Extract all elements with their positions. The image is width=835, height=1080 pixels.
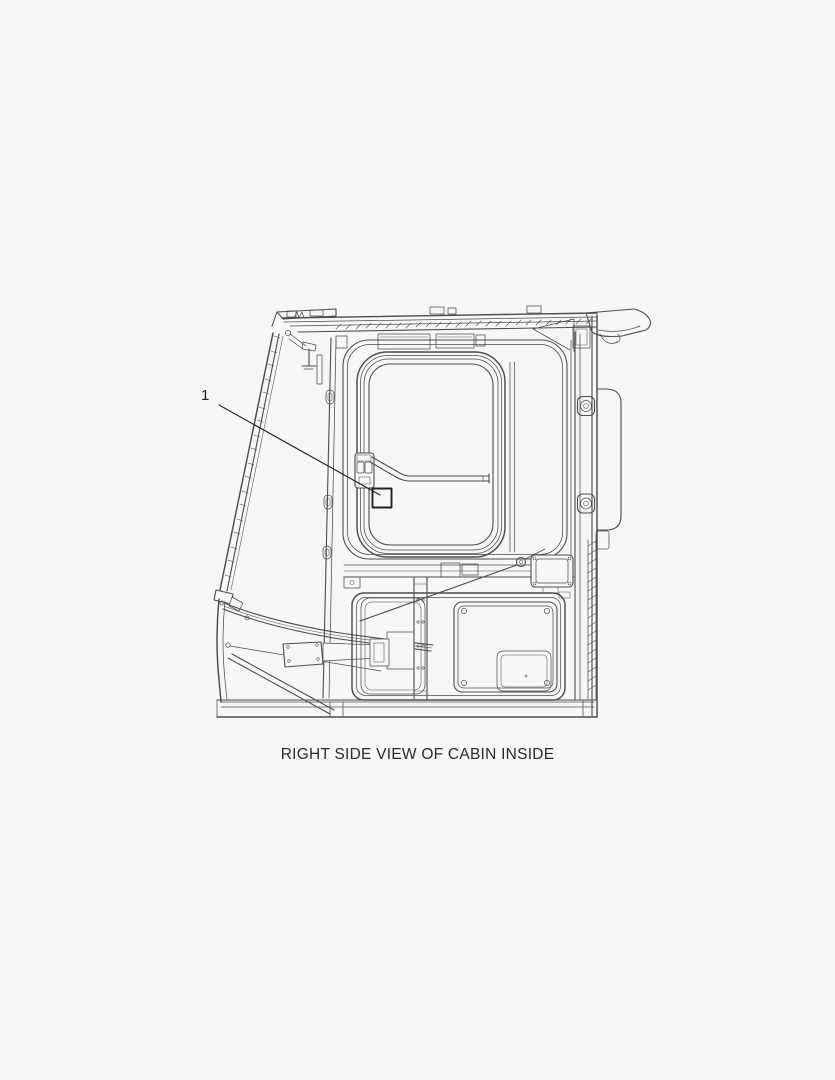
callout-target-box — [373, 489, 392, 508]
rear-pillar — [573, 315, 621, 717]
door-window — [343, 340, 571, 577]
callout-1-label: 1 — [201, 388, 210, 403]
window-latch-and-handle — [355, 453, 489, 488]
parts-diagram-figure: 1 RIGHT SIDE VIEW OF CABIN INSIDE — [0, 0, 835, 1080]
mid-rail — [344, 555, 575, 598]
leader-line — [219, 405, 380, 495]
cabin-line-drawing — [0, 0, 835, 1080]
window-regulator-cable — [360, 549, 545, 621]
figure-caption: RIGHT SIDE VIEW OF CABIN INSIDE — [0, 746, 835, 765]
floor-sill — [217, 700, 597, 717]
roof-assembly — [272, 306, 597, 384]
rear-view-bracket — [586, 309, 651, 343]
